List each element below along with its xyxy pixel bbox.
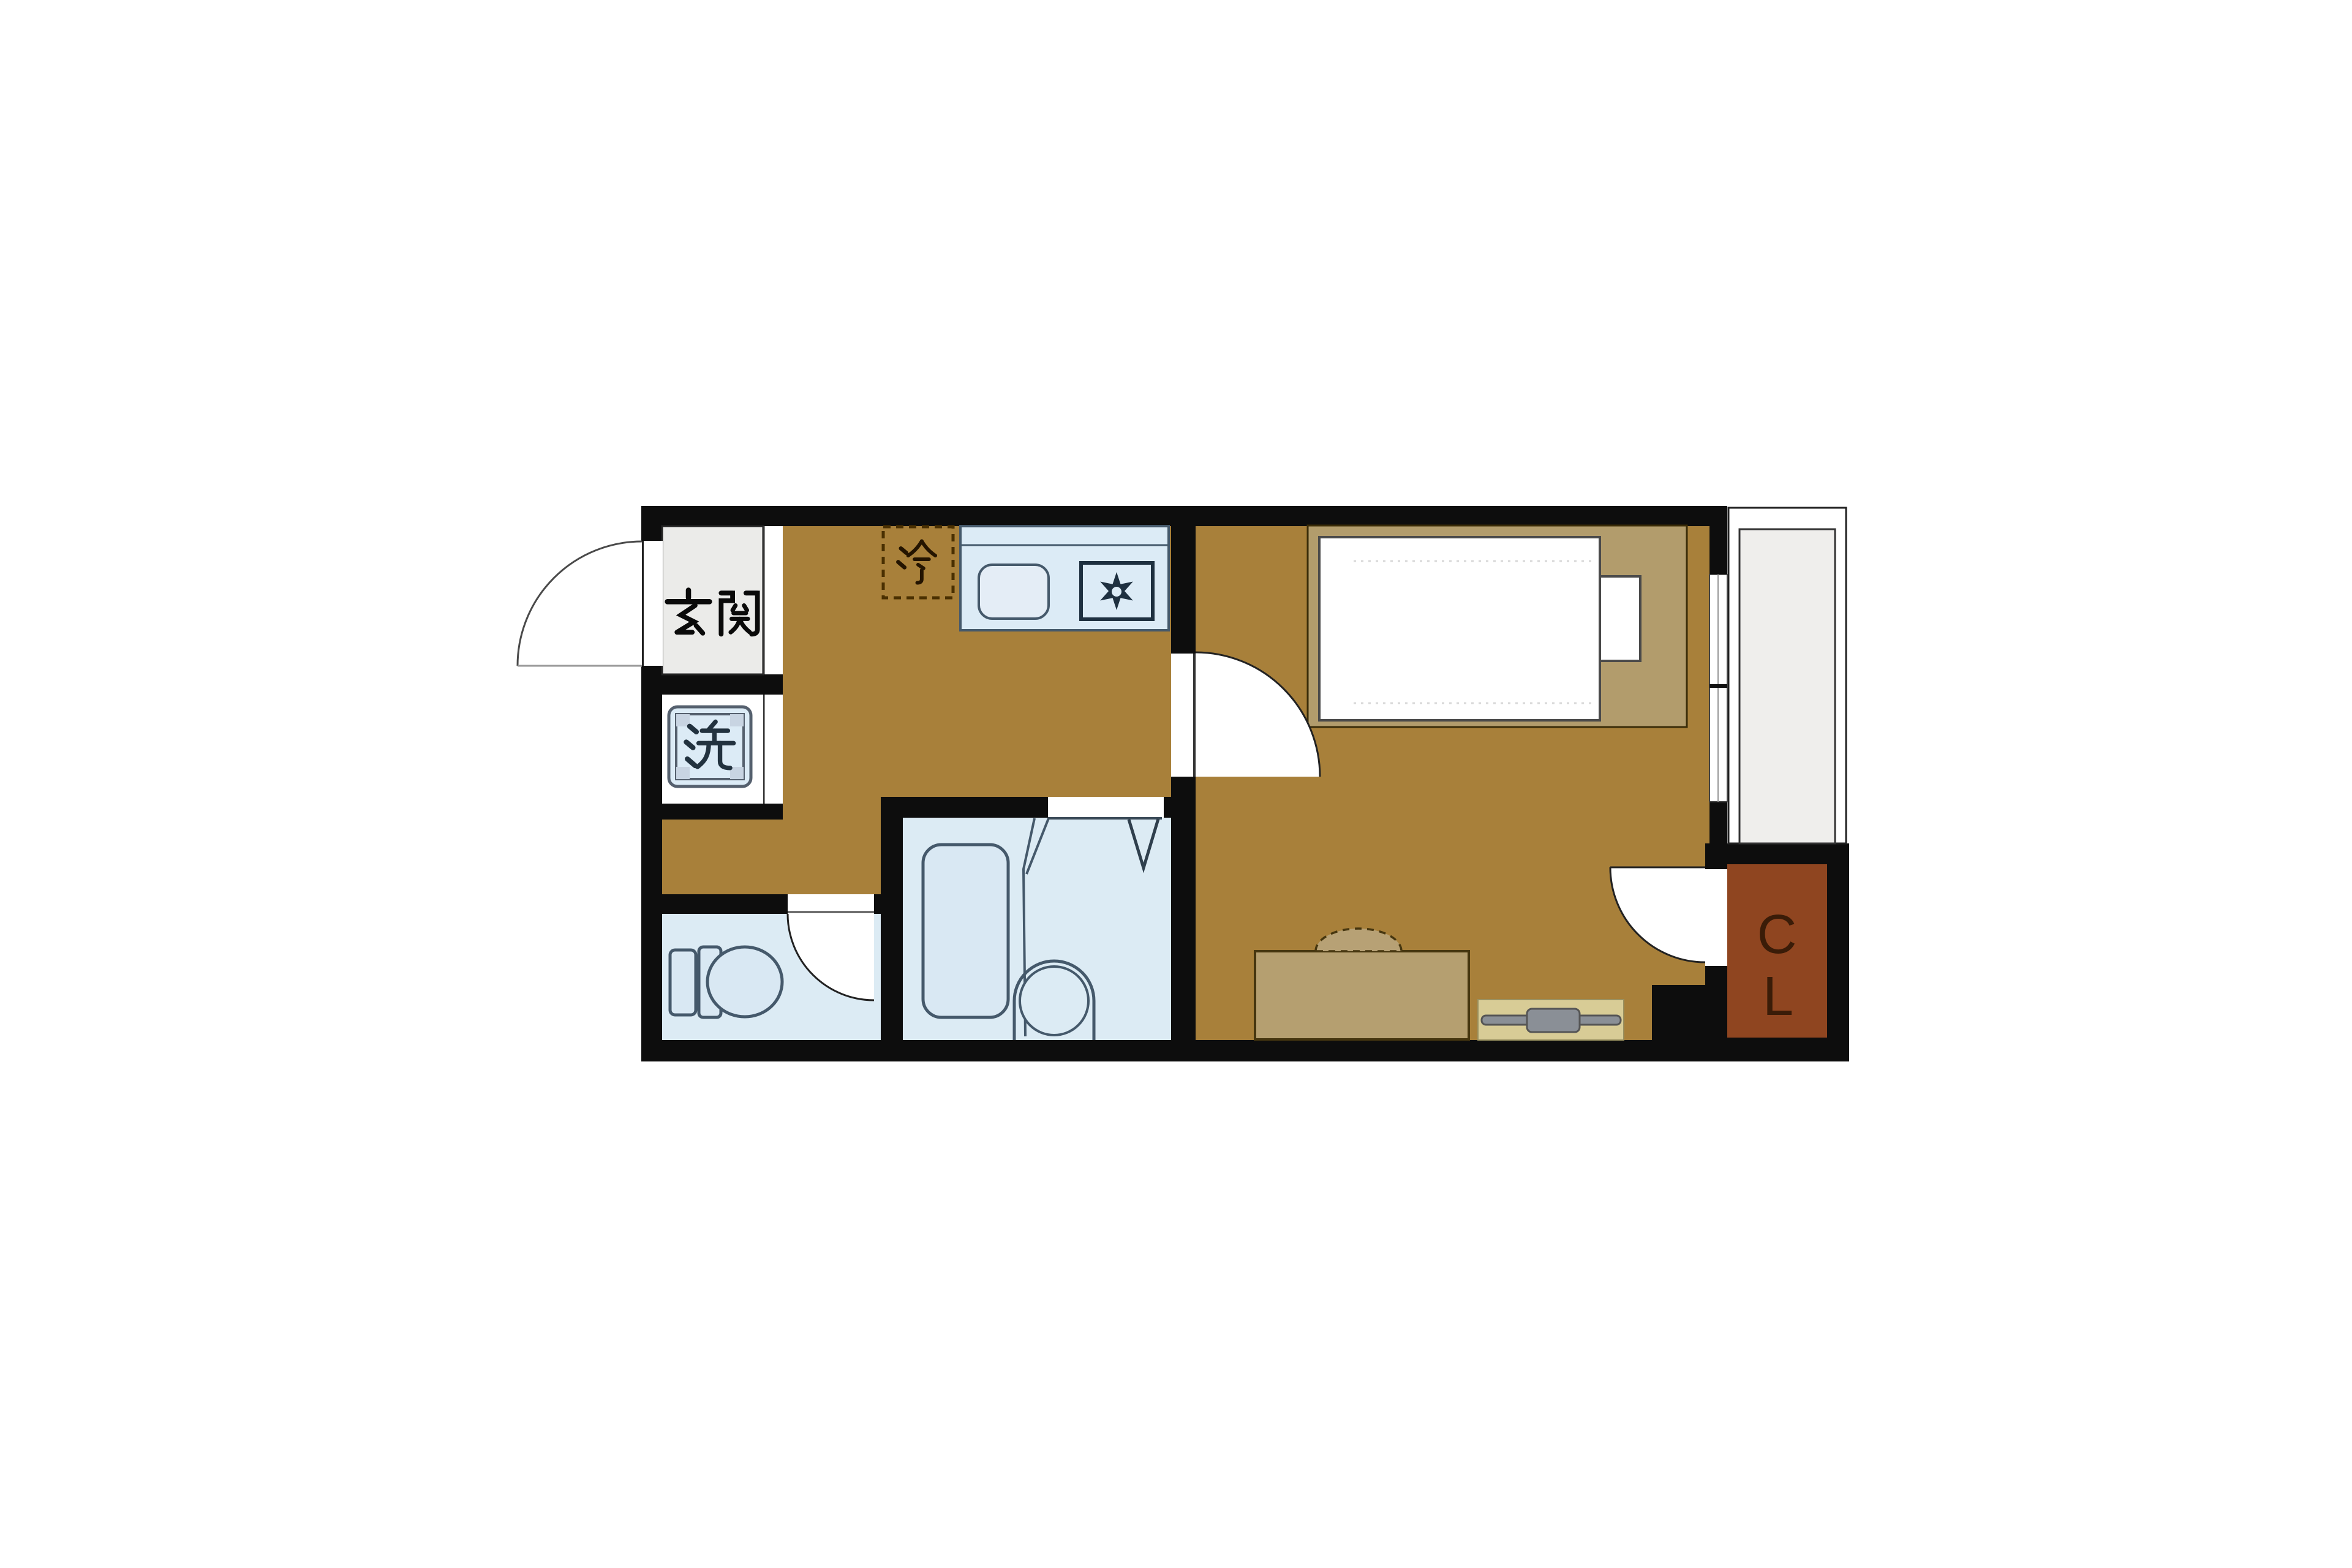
svg-text:L: L (1763, 966, 1793, 1027)
svg-text:C: C (1757, 904, 1797, 965)
